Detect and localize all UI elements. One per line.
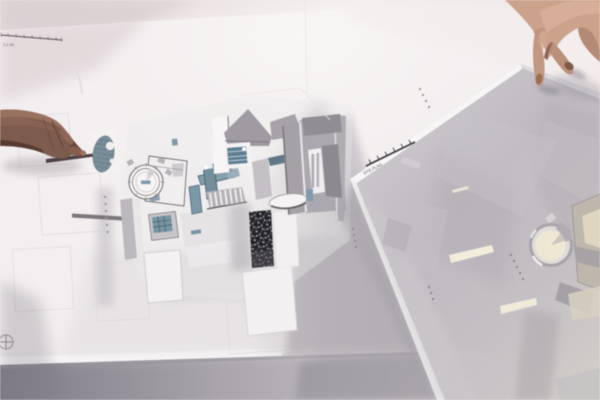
svg-text:1:2 50: 1:2 50 [3, 42, 15, 47]
